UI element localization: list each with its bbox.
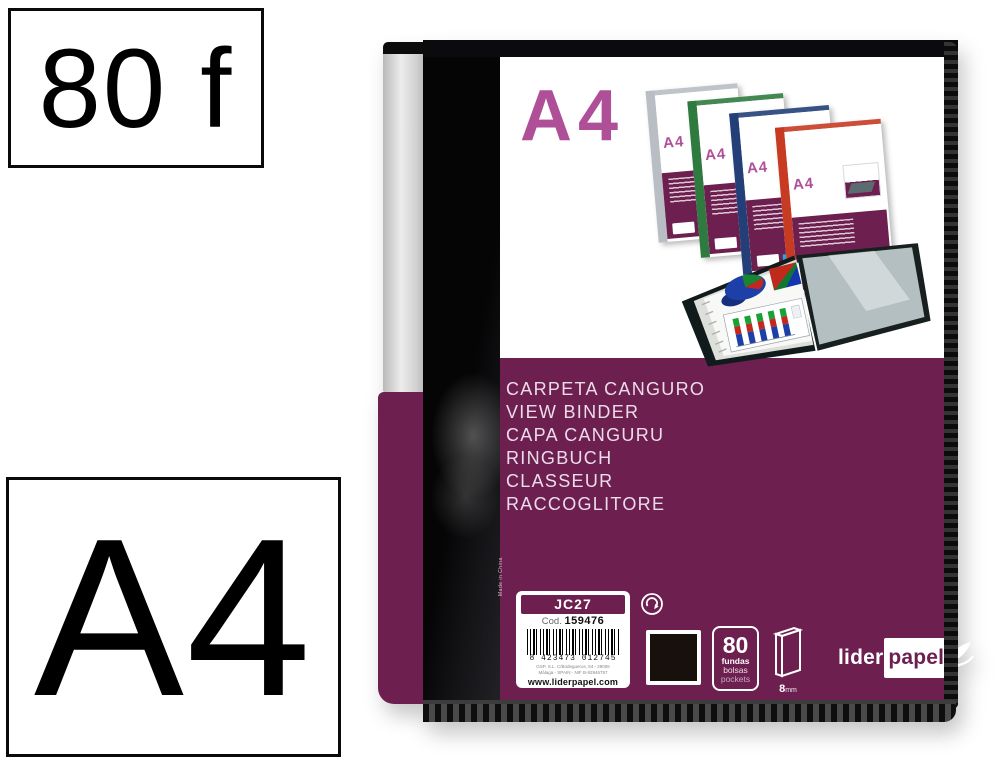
lang-line-fr: CLASSEUR <box>506 470 705 493</box>
lang-line-pt: CAPA CANGURU <box>506 424 705 447</box>
manufacturer-address: GSP, S.L. C/Bodegueros, 54 - 29006 Málag… <box>521 664 625 675</box>
binder-top-edge <box>423 40 958 57</box>
binder-stitched-bottom-edge <box>423 700 956 722</box>
lang-line-de: RINGBUCH <box>506 447 705 470</box>
lang-line-es: CARPETA CANGURO <box>506 378 705 401</box>
cover-purple-band: CARPETA CANGURO VIEW BINDER CAPA CANGURU… <box>500 358 944 700</box>
mini-format-label: A4 <box>662 133 685 152</box>
mini-format-label: A4 <box>704 145 727 164</box>
binder-spine-icon <box>770 624 806 678</box>
product-color-swatch <box>646 630 701 685</box>
cover-white-section: A4 A4 <box>500 57 944 358</box>
lang-line-it: RACCOGLITORE <box>506 493 705 516</box>
pockets-count-badge: 80 fundas bolsas pockets <box>712 626 759 691</box>
spine-label-strip <box>383 54 423 392</box>
view-binder-product: A4 A4 <box>378 40 958 724</box>
made-in-text: Made in China <box>498 557 504 596</box>
sheet-count-text: 80 f <box>39 24 234 153</box>
address-line-2: Málaga - SPAIN - NIF B-92946757 <box>521 670 625 676</box>
product-code: Cod. 159476 <box>521 615 625 627</box>
spine-width-text: 8mm <box>768 683 808 695</box>
cover-montage: A4 A4 <box>622 69 942 364</box>
paper-format-text: A4 <box>34 488 313 747</box>
front-cover-insert: A4 A4 <box>500 57 944 700</box>
binder-stitched-right-edge <box>944 42 958 708</box>
mini-format-label: A4 <box>792 174 815 193</box>
mini-label <box>672 222 695 235</box>
code-prefix: Cod. <box>542 616 562 627</box>
product-photo: 80 f A4 A4 A4 <box>0 0 1000 762</box>
mini-format-label: A4 <box>746 159 769 178</box>
cover-format-label: A4 <box>520 75 624 157</box>
paper-format-box: A4 <box>6 477 341 757</box>
address-line-1: GSP, S.L. C/Bodegueros, 54 - 29006 <box>521 664 625 670</box>
product-name-languages: CARPETA CANGURO VIEW BINDER CAPA CANGURU… <box>506 378 705 516</box>
barcode <box>527 629 619 655</box>
spine-width-badge: 8mm <box>768 624 808 690</box>
code-number: 159476 <box>565 615 605 627</box>
mini-text-lines <box>798 218 855 249</box>
binder-spine <box>423 40 500 722</box>
sheet-count-box: 80 f <box>8 8 264 168</box>
logo-text-lider: lider <box>838 646 883 670</box>
open-binder-illustration <box>678 243 940 370</box>
spine-width-unit: mm <box>785 687 797 694</box>
recycle-icon <box>640 592 664 616</box>
pockets-word-en: pockets <box>721 675 750 684</box>
lang-line-en: VIEW BINDER <box>506 401 705 424</box>
logo-text-papel: papel <box>884 638 948 678</box>
product-label: JC27 Cod. 159476 8 423473 012745 GSP, S.… <box>516 591 630 688</box>
back-cover-edge <box>378 392 423 704</box>
barcode-digits: 8 423473 012745 <box>521 654 625 663</box>
website-url: www.liderpapel.com <box>521 677 625 687</box>
model-code: JC27 <box>521 595 625 614</box>
mini-label <box>714 237 737 250</box>
mini-cover-thumbnail <box>842 162 881 199</box>
pockets-count: 80 <box>723 633 749 657</box>
